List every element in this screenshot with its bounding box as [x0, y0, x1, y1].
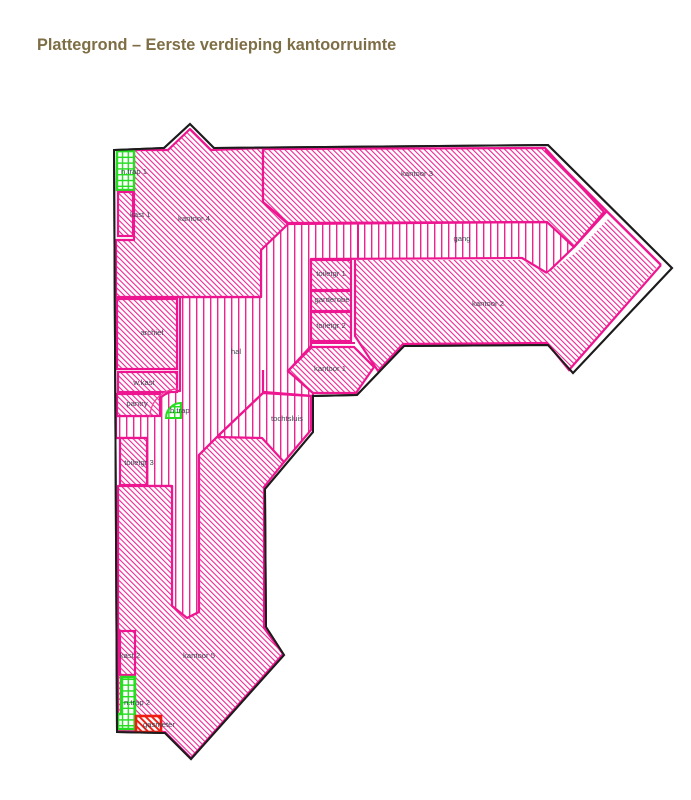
svg-text:archief: archief	[140, 328, 164, 337]
svg-text:kantoor 3: kantoor 3	[401, 169, 433, 178]
svg-text:h trap: h trap	[170, 406, 190, 415]
svg-text:tochtsluis: tochtsluis	[271, 414, 303, 423]
svg-text:toiletgr 1: toiletgr 1	[316, 269, 346, 278]
svg-text:kantoor 4: kantoor 4	[178, 214, 211, 223]
svg-text:hal: hal	[231, 347, 242, 356]
svg-text:pantry: pantry	[126, 399, 148, 408]
svg-text:kast 2: kast 2	[120, 651, 141, 660]
svg-text:kantoor 2: kantoor 2	[472, 299, 504, 308]
svg-text:n.trap 1: n.trap 1	[121, 167, 147, 176]
svg-text:toiletgr 3: toiletgr 3	[124, 458, 154, 467]
svg-text:garderobe: garderobe	[314, 295, 349, 304]
svg-text:w.kast: w.kast	[132, 378, 155, 387]
svg-text:gasmeter: gasmeter	[143, 720, 175, 729]
svg-text:gang: gang	[453, 234, 470, 243]
svg-text:n.trap 2: n.trap 2	[124, 698, 150, 707]
svg-text:kantoor 1: kantoor 1	[314, 364, 346, 373]
svg-text:kast 1: kast 1	[130, 210, 151, 219]
svg-text:kantoor 5: kantoor 5	[183, 651, 215, 660]
svg-text:toiletgr 2: toiletgr 2	[316, 321, 346, 330]
